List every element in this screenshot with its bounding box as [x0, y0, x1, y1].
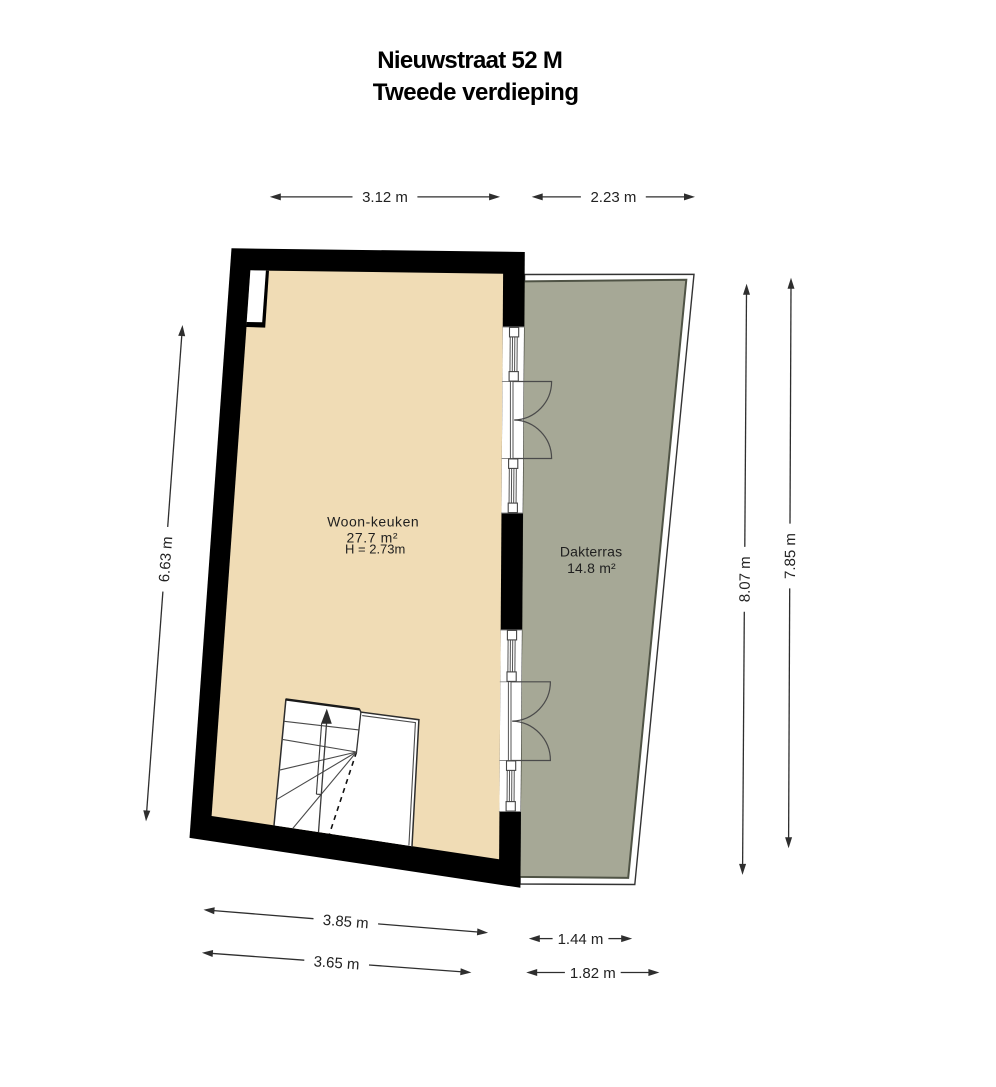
- svg-text:3.12 m: 3.12 m: [362, 189, 408, 206]
- svg-text:Tweede verdieping: Tweede verdieping: [373, 79, 579, 106]
- svg-text:1.82 m: 1.82 m: [570, 965, 616, 982]
- svg-text:3.65 m: 3.65 m: [313, 953, 360, 973]
- svg-text:H = 2.73m: H = 2.73m: [345, 541, 405, 556]
- svg-text:6.63 m: 6.63 m: [156, 536, 176, 583]
- svg-text:7.85 m: 7.85 m: [782, 533, 799, 579]
- svg-text:14.8 m²: 14.8 m²: [567, 560, 616, 576]
- svg-text:Nieuwstraat 52 M: Nieuwstraat 52 M: [377, 47, 562, 74]
- svg-text:Dakterras: Dakterras: [560, 544, 622, 560]
- svg-text:8.07 m: 8.07 m: [737, 556, 754, 602]
- svg-text:Woon-keuken: Woon-keuken: [327, 514, 419, 530]
- svg-text:2.23 m: 2.23 m: [590, 189, 636, 206]
- svg-text:1.44 m: 1.44 m: [558, 931, 604, 948]
